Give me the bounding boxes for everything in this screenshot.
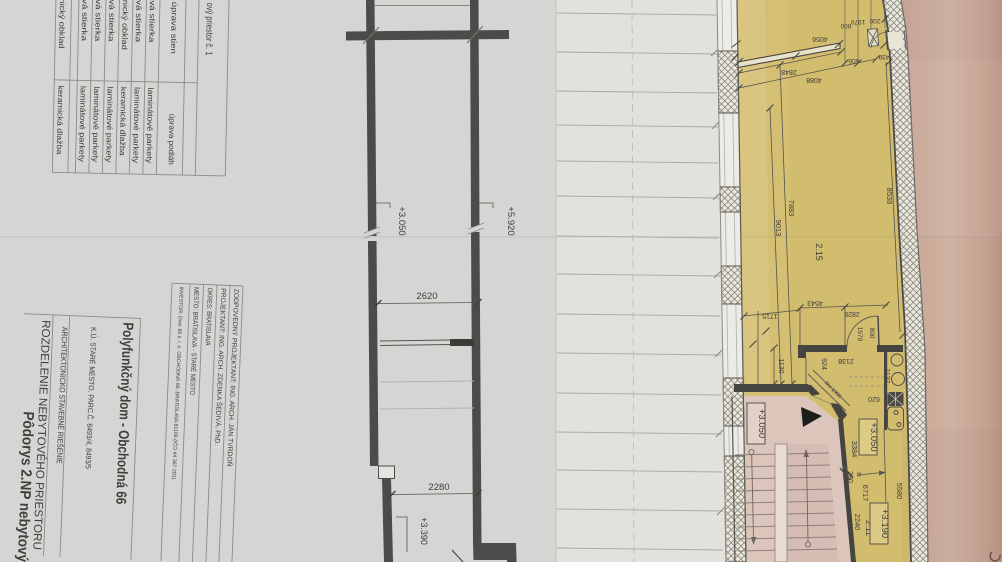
svg-text:924: 924 bbox=[820, 358, 827, 370]
svg-text:600: 600 bbox=[848, 57, 859, 64]
svg-text:laminátové parkety: laminátové parkety bbox=[91, 86, 102, 162]
svg-text:620: 620 bbox=[868, 395, 880, 402]
svg-text:nický obklad: nický obklad bbox=[57, 0, 67, 49]
svg-text:+3.050: +3.050 bbox=[868, 422, 879, 451]
svg-text:ový priestor č. 1: ový priestor č. 1 bbox=[203, 2, 215, 55]
svg-text:+5.920: +5.920 bbox=[505, 206, 516, 235]
svg-text:1970: 1970 bbox=[850, 18, 865, 25]
svg-text:2138: 2138 bbox=[838, 357, 854, 364]
svg-text:7883: 7883 bbox=[787, 200, 796, 217]
svg-text:úprava podláh: úprava podláh bbox=[167, 114, 177, 165]
svg-text:2620: 2620 bbox=[416, 291, 437, 302]
svg-text:vá stierka: vá stierka bbox=[80, 0, 90, 42]
svg-text:1715: 1715 bbox=[762, 312, 778, 319]
svg-text:3384: 3384 bbox=[850, 441, 859, 458]
svg-text:+3.050: +3.050 bbox=[396, 206, 407, 235]
svg-text:vá stierka: vá stierka bbox=[147, 0, 157, 43]
svg-text:200: 200 bbox=[869, 17, 880, 24]
svg-text:2.15: 2.15 bbox=[814, 243, 824, 261]
svg-text:+3.050: +3.050 bbox=[756, 409, 767, 438]
svg-text:4056: 4056 bbox=[812, 35, 828, 42]
svg-text:2828: 2828 bbox=[844, 310, 860, 317]
svg-text:1130: 1130 bbox=[777, 358, 784, 373]
svg-text:2848: 2848 bbox=[781, 68, 797, 75]
svg-text:2240: 2240 bbox=[853, 514, 862, 531]
svg-text:vá stierka: vá stierka bbox=[107, 0, 117, 42]
svg-text:keramická dlažba: keramická dlažba bbox=[55, 85, 65, 155]
svg-text:vá stierka: vá stierka bbox=[134, 0, 144, 43]
svg-text:5580: 5580 bbox=[895, 483, 904, 500]
svg-text:280: 280 bbox=[846, 471, 853, 483]
svg-text:+3.190: +3.190 bbox=[879, 509, 890, 538]
svg-text:6717: 6717 bbox=[861, 485, 870, 502]
svg-text:2280: 2280 bbox=[428, 482, 449, 493]
svg-text:4543: 4543 bbox=[807, 299, 823, 306]
svg-text:4088: 4088 bbox=[806, 76, 822, 83]
svg-text:laminátové parkety: laminátové parkety bbox=[145, 87, 156, 163]
svg-text:1137: 1137 bbox=[883, 368, 890, 383]
svg-text:800: 800 bbox=[868, 328, 875, 339]
svg-text:laminátové parkety: laminátové parkety bbox=[77, 86, 88, 162]
svg-text:nický obklad: nický obklad bbox=[120, 0, 130, 50]
svg-text:+3.390: +3.390 bbox=[419, 517, 429, 545]
svg-text:keramická dlažba: keramická dlažba bbox=[118, 87, 128, 157]
svg-text:800: 800 bbox=[840, 22, 851, 29]
svg-text:8538: 8538 bbox=[885, 188, 894, 205]
svg-text:laminátové parkety: laminátové parkety bbox=[131, 87, 142, 163]
svg-text:1970: 1970 bbox=[856, 327, 863, 342]
svg-text:úprava stien: úprava stien bbox=[169, 2, 179, 54]
svg-text:439: 439 bbox=[878, 53, 889, 60]
svg-text:9013: 9013 bbox=[774, 220, 783, 237]
svg-text:laminátové parkety: laminátové parkety bbox=[104, 86, 115, 162]
svg-text:vá stierka: vá stierka bbox=[93, 0, 103, 42]
